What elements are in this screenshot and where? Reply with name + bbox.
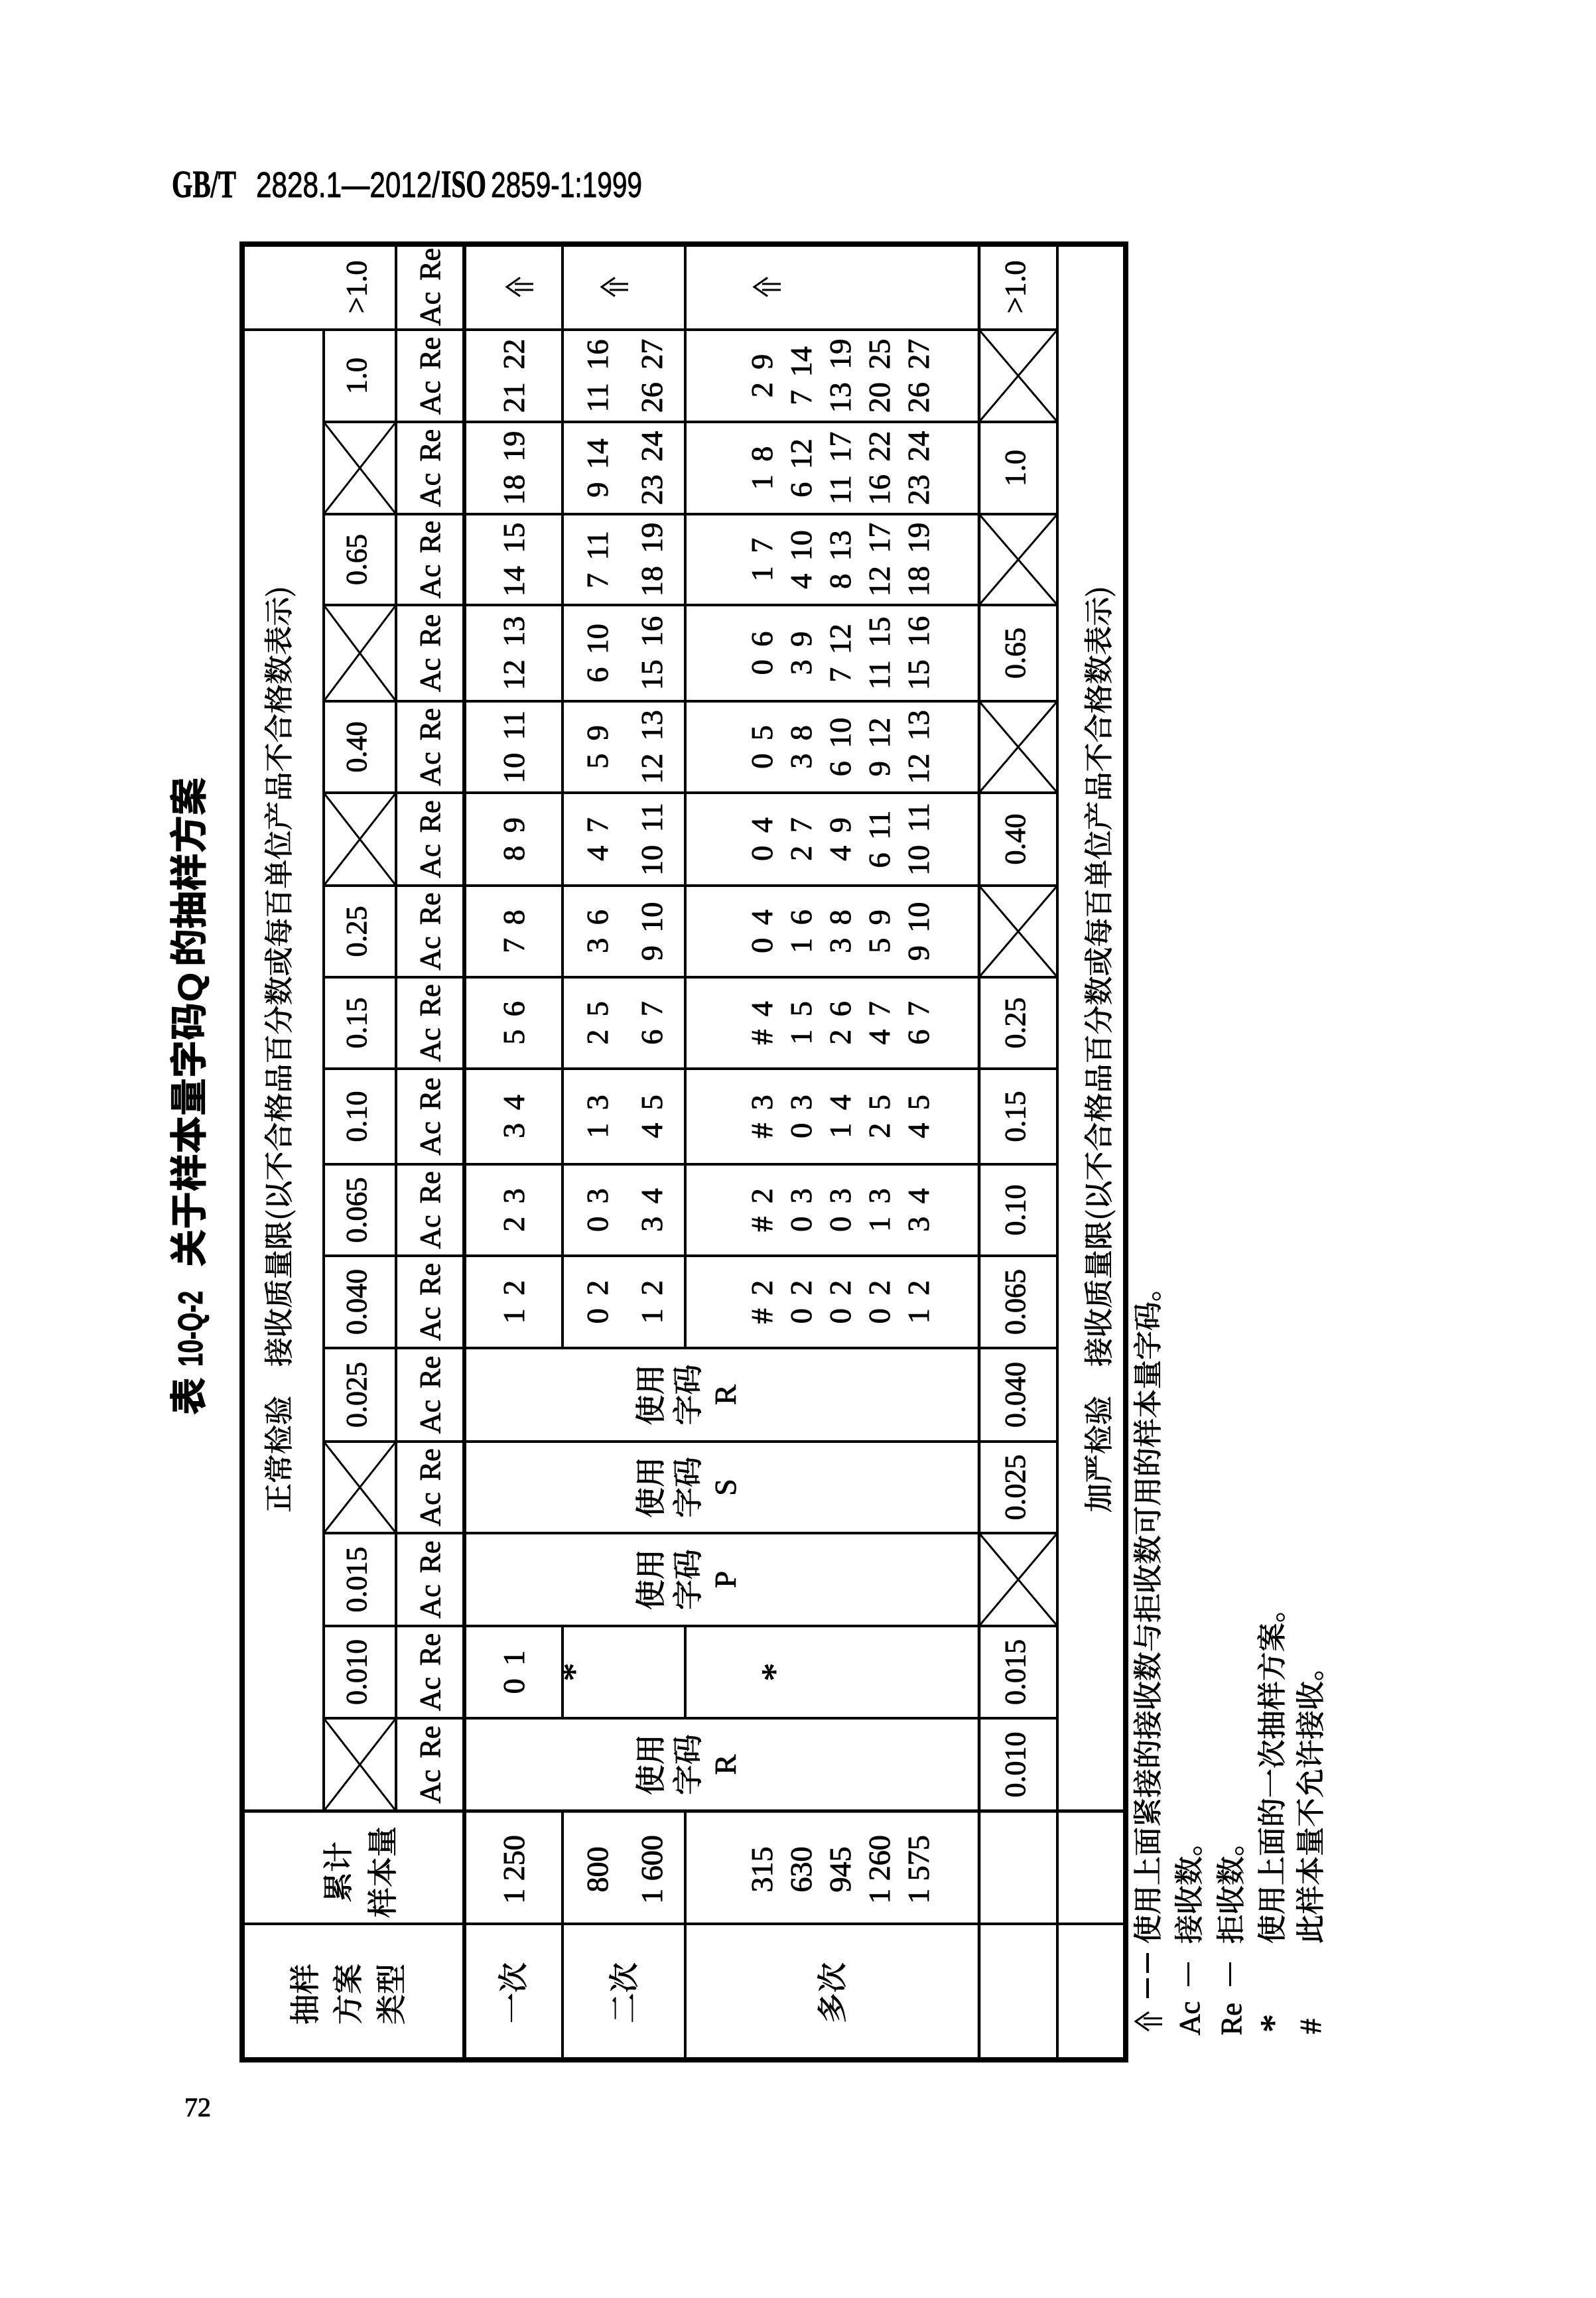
svg-text:0.15: 0.15 (340, 998, 373, 1049)
svg-text:Ac Re: Ac Re (414, 1356, 446, 1434)
svg-text:7 11: 7 11 (580, 531, 614, 588)
svg-text:0 4: 0 4 (745, 910, 779, 953)
svg-text:315: 315 (745, 1847, 779, 1893)
svg-text:Ac Re: Ac Re (414, 1448, 446, 1526)
svg-text:Ac Re: Ac Re (414, 429, 446, 507)
svg-text:# 4: # 4 (745, 1001, 779, 1045)
svg-text:0.10: 0.10 (340, 1091, 373, 1142)
svg-text:# 2: # 2 (745, 1188, 779, 1232)
svg-text:9 10: 9 10 (635, 902, 669, 961)
svg-text:Ac Re: Ac Re (414, 708, 446, 785)
svg-text:1 2: 1 2 (901, 1280, 935, 1324)
svg-text:23 24: 23 24 (635, 431, 669, 506)
svg-text:1 6: 1 6 (784, 910, 818, 953)
svg-text:# 2: # 2 (745, 1280, 779, 1324)
svg-text:11 15: 11 15 (862, 617, 896, 690)
svg-text:1 8: 1 8 (745, 446, 779, 490)
svg-text:0.25: 0.25 (999, 998, 1031, 1049)
svg-text:2 3: 2 3 (497, 1188, 531, 1232)
svg-text:6 7: 6 7 (901, 1001, 935, 1045)
svg-text:72: 72 (184, 2092, 211, 2122)
svg-text:Ac Re: Ac Re (414, 1263, 446, 1341)
svg-text:0.25: 0.25 (340, 906, 373, 957)
svg-text:0 2: 0 2 (580, 1280, 614, 1324)
svg-text:3 4: 3 4 (635, 1188, 669, 1232)
svg-text:0 3: 0 3 (580, 1188, 614, 1232)
svg-text:630: 630 (784, 1847, 818, 1893)
svg-text:0 2: 0 2 (862, 1280, 896, 1324)
svg-text:8 9: 8 9 (497, 817, 531, 861)
svg-text:3 4: 3 4 (497, 1095, 531, 1138)
svg-text:1 2: 1 2 (635, 1280, 669, 1324)
svg-text:12 17: 12 17 (862, 523, 896, 597)
svg-text:0 3: 0 3 (784, 1095, 818, 1138)
svg-text:18 19: 18 19 (497, 431, 531, 506)
svg-text:945: 945 (823, 1847, 857, 1893)
svg-text:1.0: 1.0 (999, 450, 1031, 486)
svg-text:3 6: 3 6 (580, 910, 614, 953)
svg-text:0.40: 0.40 (340, 722, 373, 773)
svg-text:0.10: 0.10 (999, 1185, 1031, 1236)
svg-text:8 13: 8 13 (823, 530, 857, 589)
svg-text:3 8: 3 8 (784, 725, 818, 769)
svg-text:0.65: 0.65 (999, 628, 1031, 679)
svg-text:0.065: 0.065 (340, 1178, 373, 1243)
svg-text:18 19: 18 19 (901, 523, 935, 597)
svg-text:0.15: 0.15 (999, 1091, 1031, 1142)
svg-text:2 6: 2 6 (823, 1001, 857, 1045)
svg-text:1 600: 1 600 (635, 1835, 669, 1904)
svg-text:15 16: 15 16 (635, 616, 669, 691)
svg-text:1 250: 1 250 (497, 1835, 531, 1904)
svg-text:26 27: 26 27 (635, 339, 669, 413)
svg-text:6 10: 6 10 (580, 624, 614, 683)
svg-text:4 10: 4 10 (784, 530, 818, 589)
svg-text:Ac Re: Ac Re (414, 1633, 446, 1711)
svg-text:>1.0: >1.0 (340, 261, 373, 314)
svg-text:6 11: 6 11 (862, 811, 896, 868)
svg-text:0.010: 0.010 (999, 1732, 1031, 1798)
svg-text:1 575: 1 575 (901, 1835, 935, 1904)
svg-text:14 15: 14 15 (497, 523, 531, 597)
svg-text:# 3: # 3 (745, 1095, 779, 1138)
svg-text:800: 800 (580, 1847, 614, 1893)
svg-text:Q: Q (172, 973, 210, 1002)
svg-text:R: R (708, 1754, 742, 1775)
svg-text:1 4: 1 4 (823, 1095, 857, 1138)
svg-text:7 8: 7 8 (497, 910, 531, 953)
svg-text:4 5: 4 5 (635, 1095, 669, 1138)
svg-text:2 5: 2 5 (862, 1095, 896, 1138)
svg-text:ISO: ISO (441, 163, 486, 206)
svg-text:5 9: 5 9 (862, 910, 896, 953)
svg-text:0 2: 0 2 (823, 1280, 857, 1324)
svg-text:11 16: 11 16 (580, 340, 614, 413)
svg-text:10 11: 10 11 (901, 803, 935, 876)
svg-text:21 22: 21 22 (497, 339, 531, 413)
svg-text:R: R (708, 1385, 742, 1405)
svg-text:1 5: 1 5 (784, 1001, 818, 1045)
svg-text:4 9: 4 9 (823, 817, 857, 861)
svg-text:4 5: 4 5 (901, 1095, 935, 1138)
svg-text:0 3: 0 3 (823, 1188, 857, 1232)
svg-text:1 7: 1 7 (745, 538, 779, 582)
svg-text:Re: Re (1215, 2003, 1248, 2035)
svg-text:Ac Re: Ac Re (414, 1077, 446, 1155)
svg-text:7 12: 7 12 (823, 624, 857, 683)
svg-text:3 9: 3 9 (784, 632, 818, 675)
svg-text:P: P (708, 1571, 742, 1588)
svg-text:*: * (554, 1663, 595, 1682)
svg-text:1 260: 1 260 (862, 1835, 896, 1904)
svg-text:11 17: 11 17 (823, 432, 857, 505)
svg-text:6 12: 6 12 (784, 439, 818, 498)
svg-text:3 8: 3 8 (823, 910, 857, 953)
svg-text:26 27: 26 27 (901, 339, 935, 413)
svg-text:2 7: 2 7 (784, 817, 818, 861)
svg-text:10 11: 10 11 (497, 710, 531, 783)
svg-text:2 5: 2 5 (580, 1001, 614, 1045)
svg-text:>1.0: >1.0 (999, 261, 1031, 314)
svg-text:12 13: 12 13 (497, 616, 531, 691)
svg-text:1 3: 1 3 (862, 1188, 896, 1232)
svg-text:6 10: 6 10 (823, 718, 857, 777)
svg-text:GB/T: GB/T (172, 163, 236, 206)
svg-text:0 3: 0 3 (784, 1188, 818, 1232)
svg-text:6 7: 6 7 (635, 1001, 669, 1045)
svg-text:0 5: 0 5 (745, 725, 779, 769)
svg-text:*: * (754, 1663, 795, 1682)
svg-text:0.015: 0.015 (999, 1639, 1031, 1705)
svg-text:4 7: 4 7 (580, 817, 614, 861)
svg-text:13 19: 13 19 (823, 339, 857, 413)
svg-text:0.65: 0.65 (340, 534, 373, 585)
svg-text:12 13: 12 13 (901, 710, 935, 784)
svg-text:Ac Re: Ac Re (414, 800, 446, 878)
svg-text:10 11: 10 11 (635, 803, 669, 876)
svg-text:#: # (1294, 2019, 1327, 2034)
svg-text:5 9: 5 9 (580, 725, 614, 769)
svg-text:0.040: 0.040 (999, 1362, 1031, 1428)
svg-text:0.025: 0.025 (340, 1362, 373, 1428)
svg-text:0.025: 0.025 (999, 1455, 1031, 1521)
svg-text:2828.1—2012/: 2828.1—2012/ (256, 165, 440, 205)
svg-text:0.40: 0.40 (999, 814, 1031, 865)
svg-text:0.015: 0.015 (340, 1547, 373, 1613)
svg-text:0 2: 0 2 (784, 1280, 818, 1324)
svg-text:Ac Re: Ac Re (414, 1725, 446, 1803)
svg-text:Ac Re: Ac Re (414, 984, 446, 1061)
svg-text:*: * (1253, 2014, 1294, 2033)
svg-text:3 4: 3 4 (901, 1188, 935, 1232)
svg-text:12 13: 12 13 (635, 710, 669, 784)
svg-text:1 2: 1 2 (497, 1280, 531, 1324)
svg-text:1 3: 1 3 (580, 1095, 614, 1138)
svg-text:23 24: 23 24 (901, 431, 935, 506)
svg-text:0 1: 0 1 (497, 1651, 531, 1694)
svg-text:20 25: 20 25 (862, 339, 896, 413)
svg-text:9 14: 9 14 (580, 439, 614, 498)
svg-text:0.010: 0.010 (340, 1639, 373, 1705)
svg-text:Ac Re: Ac Re (414, 337, 446, 415)
svg-text:16 22: 16 22 (862, 431, 896, 506)
svg-text:S: S (708, 1479, 742, 1496)
svg-text:Ac Re: Ac Re (414, 521, 446, 598)
svg-text:Ac Re: Ac Re (414, 248, 446, 326)
svg-text:2 9: 2 9 (745, 354, 779, 398)
svg-text:0 4: 0 4 (745, 817, 779, 861)
svg-text:9 10: 9 10 (901, 902, 935, 961)
svg-text:5 6: 5 6 (497, 1001, 531, 1045)
svg-text:10-Q-2: 10-Q-2 (172, 1291, 210, 1367)
svg-text:7 14: 7 14 (784, 346, 818, 405)
svg-text:0.065: 0.065 (999, 1269, 1031, 1335)
svg-text:4 7: 4 7 (862, 1001, 896, 1045)
svg-text:15 16: 15 16 (901, 616, 935, 691)
svg-text:2859-1:1999: 2859-1:1999 (491, 165, 642, 205)
svg-text:0.040: 0.040 (340, 1269, 373, 1335)
svg-text:1.0: 1.0 (340, 358, 373, 394)
svg-text:Ac Re: Ac Re (414, 892, 446, 970)
svg-text:0 6: 0 6 (745, 632, 779, 675)
svg-text:18 19: 18 19 (635, 523, 669, 597)
svg-text:Ac Re: Ac Re (414, 1171, 446, 1249)
svg-text:Ac: Ac (1173, 2001, 1206, 2035)
svg-text:Ac Re: Ac Re (414, 614, 446, 692)
svg-text:Ac Re: Ac Re (414, 1540, 446, 1618)
svg-text:9 12: 9 12 (862, 718, 896, 777)
